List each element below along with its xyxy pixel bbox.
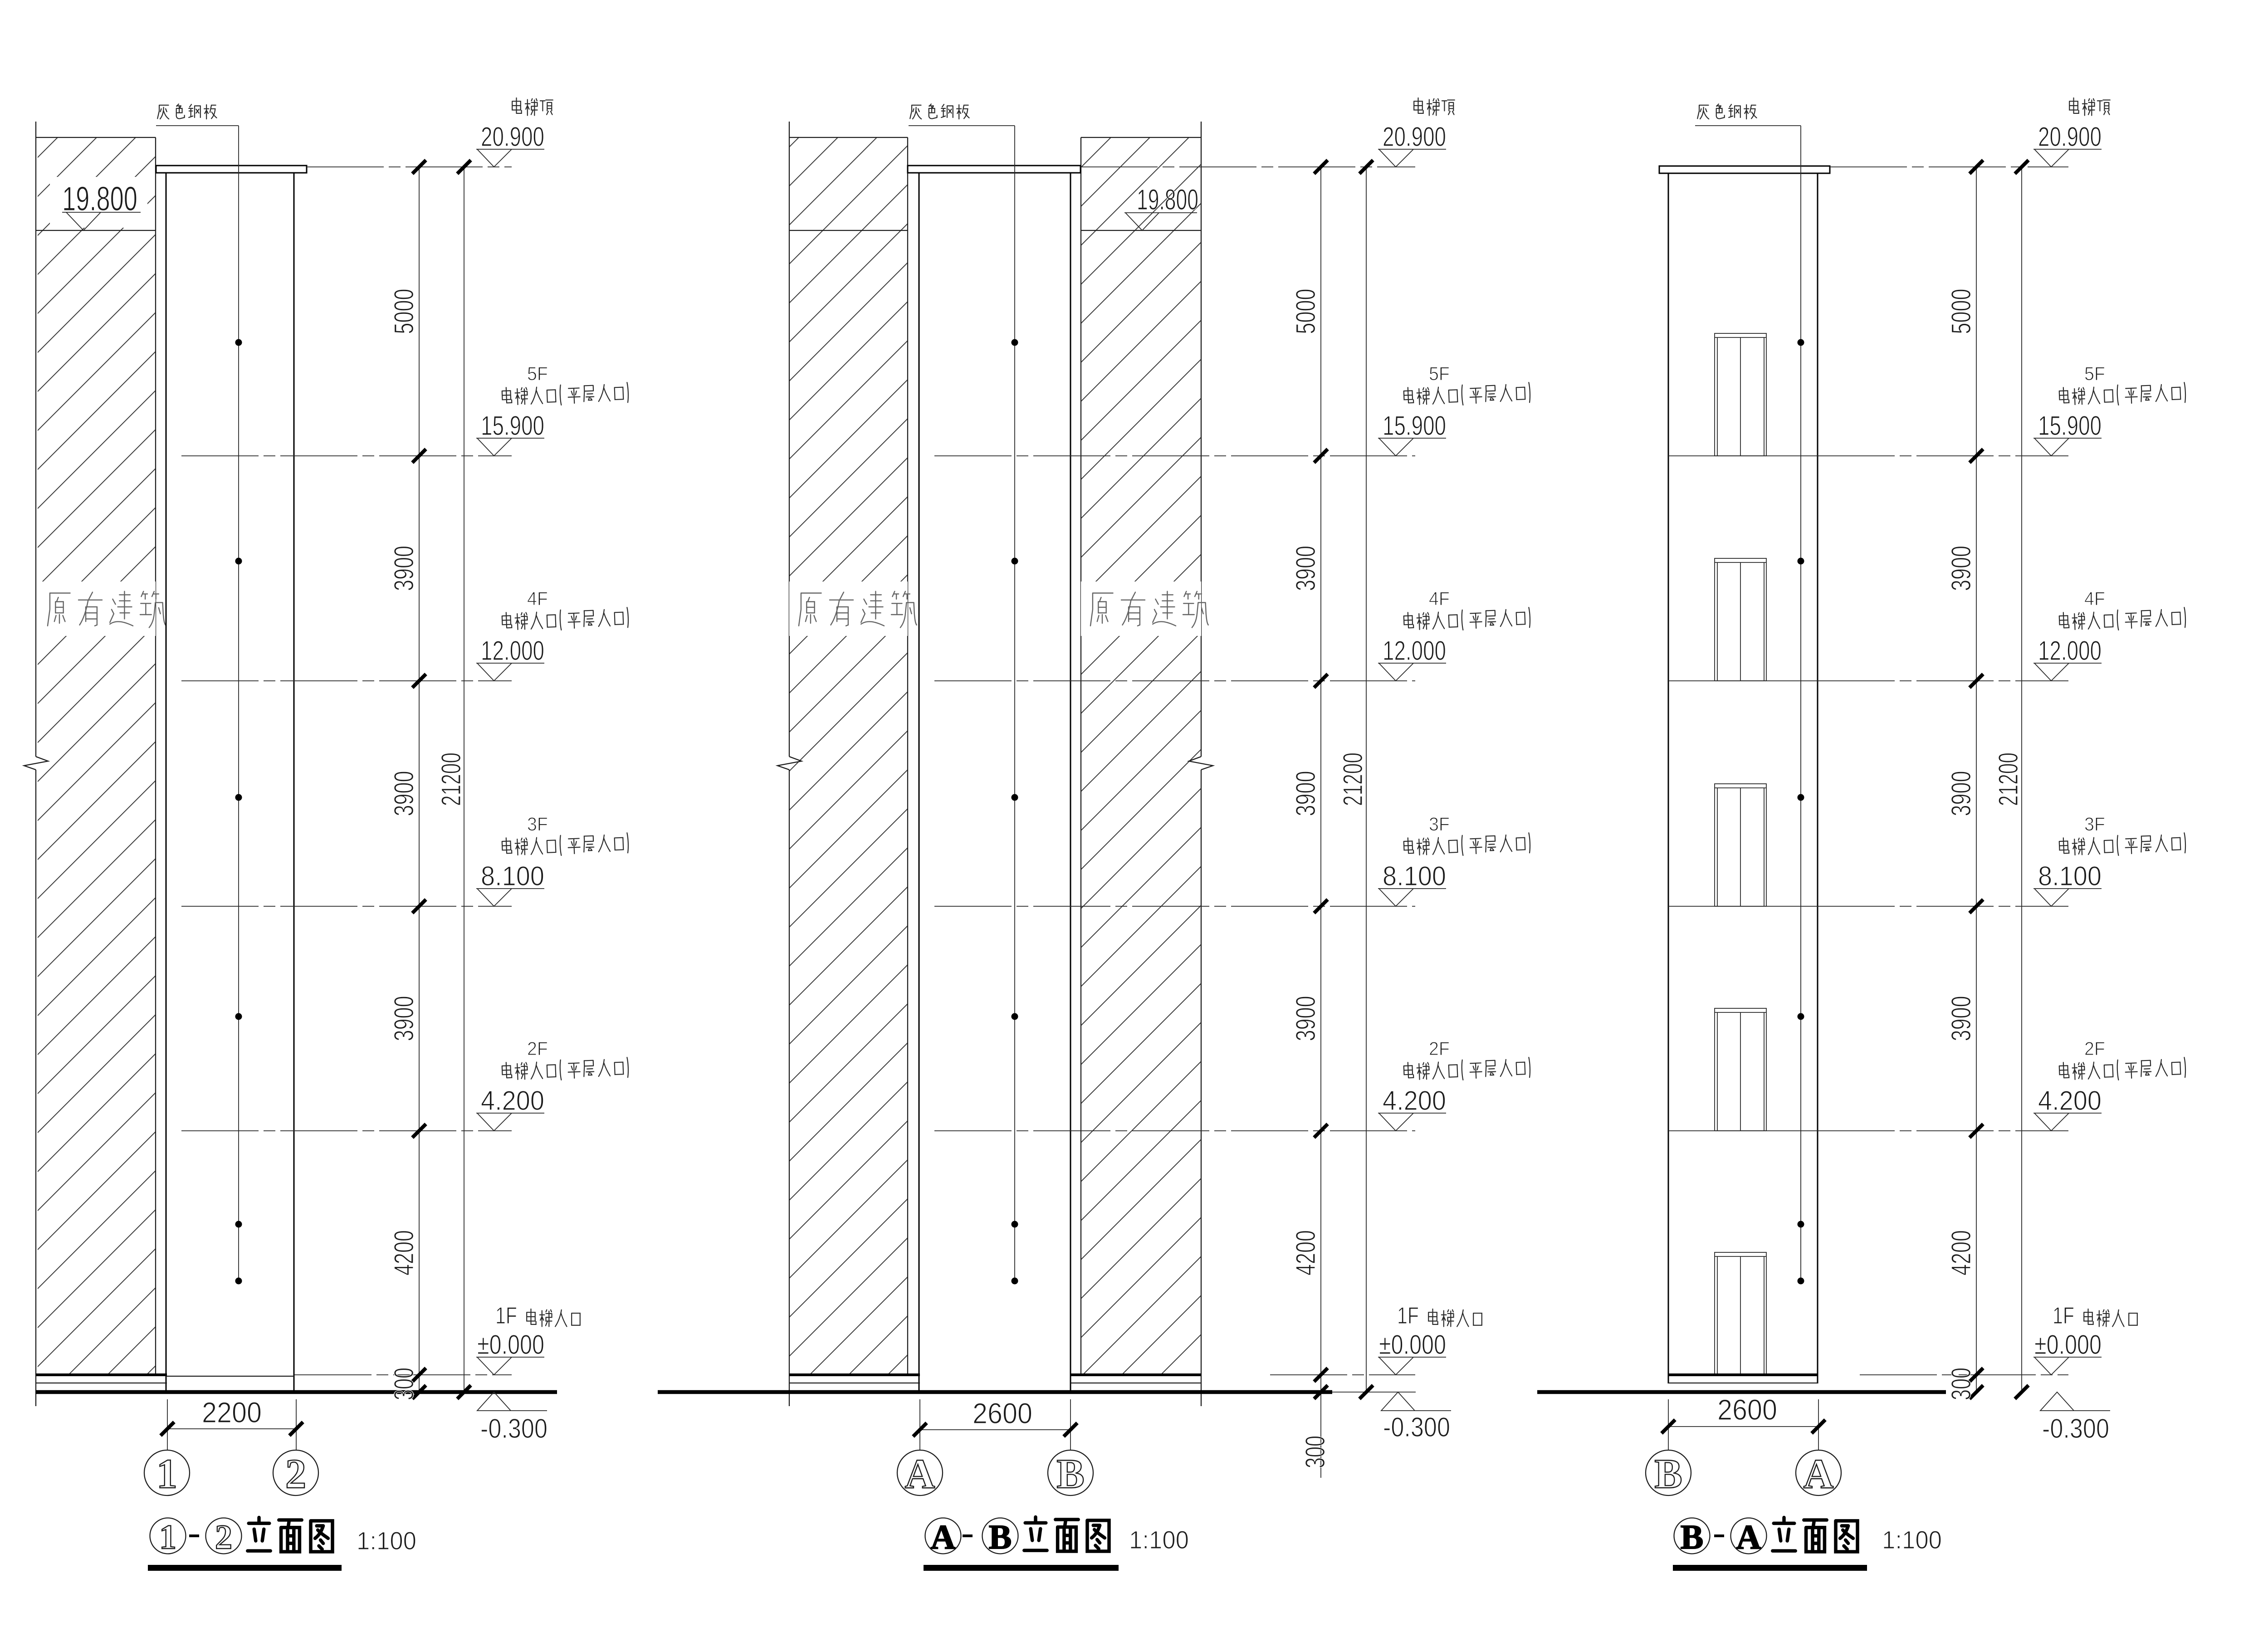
svg-text:-0.300: -0.300: [2042, 1413, 2109, 1444]
svg-text:1F: 1F: [495, 1303, 517, 1329]
svg-text:±0.000: ±0.000: [477, 1329, 544, 1360]
svg-text:4F: 4F: [2084, 588, 2105, 609]
svg-text:2600: 2600: [973, 1397, 1032, 1430]
svg-text:A: A: [905, 1451, 935, 1497]
svg-text:1:100: 1:100: [357, 1526, 416, 1555]
svg-text:15.900: 15.900: [2038, 410, 2102, 441]
svg-text:20.900: 20.900: [481, 122, 544, 152]
svg-text:4200: 4200: [1290, 1230, 1321, 1275]
svg-text:4.200: 4.200: [1383, 1085, 1446, 1116]
svg-text:2F: 2F: [527, 1038, 548, 1059]
svg-text:4200: 4200: [389, 1230, 419, 1275]
svg-text:±0.000: ±0.000: [1379, 1329, 1446, 1360]
svg-text:8.100: 8.100: [2038, 861, 2102, 891]
svg-text:3900: 3900: [389, 546, 419, 591]
svg-text:5000: 5000: [389, 289, 419, 334]
svg-text:2F: 2F: [1429, 1038, 1450, 1059]
svg-text:8.100: 8.100: [1383, 861, 1446, 891]
svg-text:2600: 2600: [1717, 1393, 1777, 1426]
svg-text:B: B: [1681, 1518, 1704, 1556]
svg-text:3900: 3900: [1946, 771, 1976, 816]
svg-text:B: B: [1056, 1451, 1084, 1497]
svg-text:5F: 5F: [1429, 363, 1450, 384]
svg-text:2F: 2F: [2084, 1038, 2105, 1059]
svg-text:A: A: [1736, 1518, 1761, 1556]
svg-text:1: 1: [159, 1518, 176, 1556]
svg-text:2: 2: [215, 1518, 232, 1556]
svg-text:300: 300: [389, 1368, 419, 1400]
svg-text:1:100: 1:100: [1129, 1525, 1189, 1554]
svg-text:3F: 3F: [527, 813, 548, 835]
svg-text:3900: 3900: [389, 771, 419, 816]
svg-text:4.200: 4.200: [2038, 1085, 2102, 1116]
svg-text:A: A: [1804, 1451, 1833, 1497]
svg-text:1:100: 1:100: [1882, 1525, 1942, 1554]
svg-text:5F: 5F: [2084, 363, 2105, 384]
svg-text:A: A: [931, 1518, 956, 1556]
svg-text:4F: 4F: [527, 588, 548, 609]
svg-text:300: 300: [1300, 1436, 1330, 1468]
svg-text:4F: 4F: [1429, 588, 1450, 609]
svg-text:20.900: 20.900: [1383, 122, 1446, 152]
svg-text:1: 1: [156, 1451, 177, 1497]
svg-text:1F: 1F: [1397, 1303, 1419, 1329]
svg-text:12.000: 12.000: [1383, 635, 1446, 666]
svg-text:5000: 5000: [1290, 289, 1321, 334]
svg-text:3900: 3900: [389, 996, 419, 1041]
svg-text:-0.300: -0.300: [480, 1413, 547, 1444]
svg-text:4200: 4200: [1946, 1230, 1976, 1275]
svg-text:3F: 3F: [2084, 813, 2105, 835]
svg-text:300: 300: [1946, 1368, 1976, 1400]
svg-text:3900: 3900: [1290, 771, 1321, 816]
svg-text:3900: 3900: [1946, 996, 1976, 1041]
svg-text:1F: 1F: [2053, 1303, 2074, 1329]
svg-text:-0.300: -0.300: [1383, 1412, 1450, 1442]
svg-text:3900: 3900: [1290, 546, 1321, 591]
svg-text:21200: 21200: [436, 753, 466, 806]
svg-text:20.900: 20.900: [2038, 122, 2102, 152]
svg-text:±0.000: ±0.000: [2034, 1329, 2102, 1360]
svg-text:12.000: 12.000: [2038, 635, 2102, 666]
svg-text:21200: 21200: [1338, 753, 1368, 806]
svg-text:21200: 21200: [1993, 753, 2024, 806]
svg-text:15.900: 15.900: [481, 410, 544, 441]
svg-text:5F: 5F: [527, 363, 548, 384]
svg-text:15.900: 15.900: [1383, 410, 1446, 441]
svg-text:5000: 5000: [1946, 289, 1976, 334]
svg-text:3900: 3900: [1290, 996, 1321, 1041]
svg-text:3900: 3900: [1946, 546, 1976, 591]
svg-text:2: 2: [285, 1451, 306, 1497]
svg-text:4.200: 4.200: [481, 1085, 544, 1116]
svg-text:3F: 3F: [1429, 813, 1450, 835]
svg-text:B: B: [1654, 1451, 1682, 1497]
svg-text:B: B: [989, 1518, 1012, 1556]
svg-text:19.800: 19.800: [1137, 183, 1198, 216]
svg-text:12.000: 12.000: [481, 635, 544, 666]
svg-text:2200: 2200: [202, 1396, 262, 1429]
svg-text:8.100: 8.100: [481, 861, 544, 891]
